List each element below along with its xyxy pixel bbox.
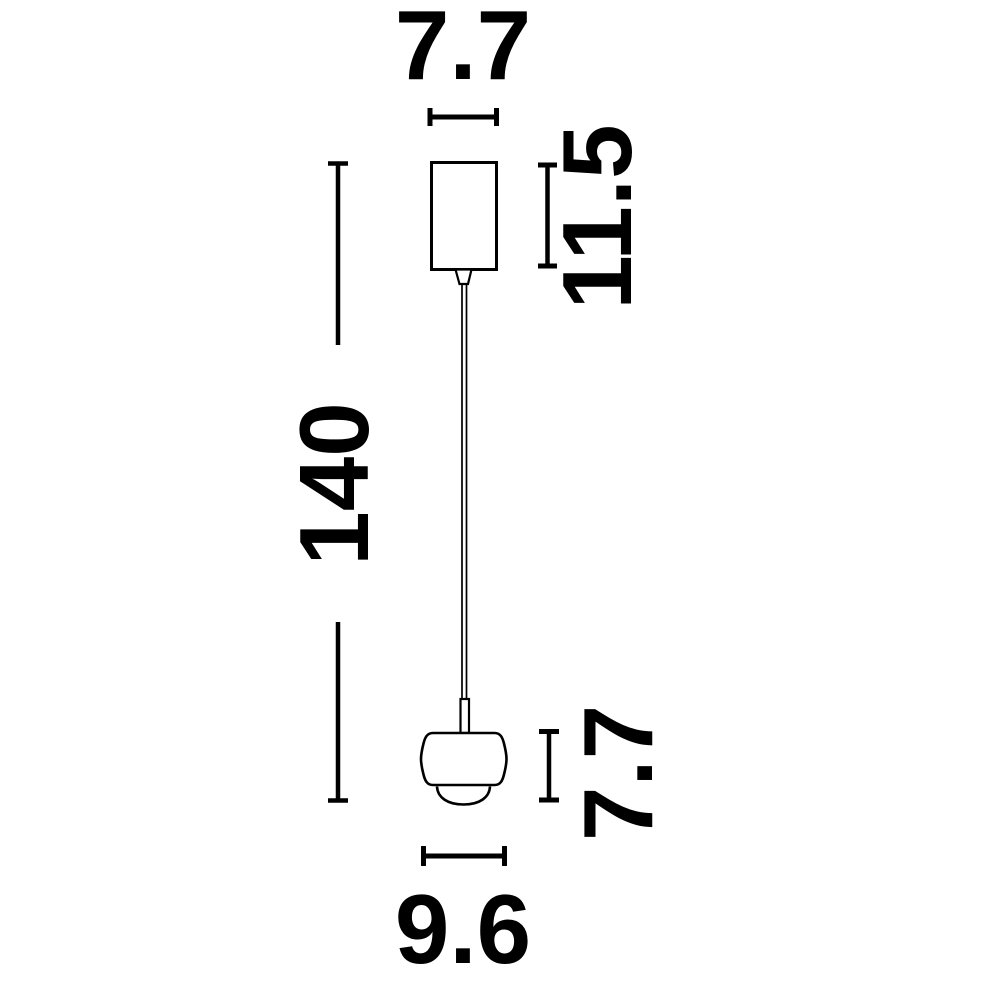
suspension-cable [462,284,467,700]
cable-gland-outline [456,270,472,285]
shade-height-label: 7.7 [563,705,673,841]
shade-height-dimension-line [539,731,559,800]
canopy-width-label: 7.7 [395,0,531,100]
shade-width-dimension-line [421,846,507,866]
suspension-length-label: 140 [279,402,389,566]
diffuser-dome-outline [437,787,490,805]
canopy-height-label: 11.5 [542,124,652,309]
shade-width-label: 9.6 [395,874,531,984]
dimension-drawing-canvas: 7.7 11.5 140 7.7 9.6 [0,0,984,985]
shade-body-outline [421,733,507,785]
shade-stem-outline [461,699,470,733]
pendant-lamp-diagram: 7.7 11.5 140 7.7 9.6 [0,0,984,985]
canopy-outline [432,163,497,270]
canopy-width-dimension-line [428,108,499,126]
